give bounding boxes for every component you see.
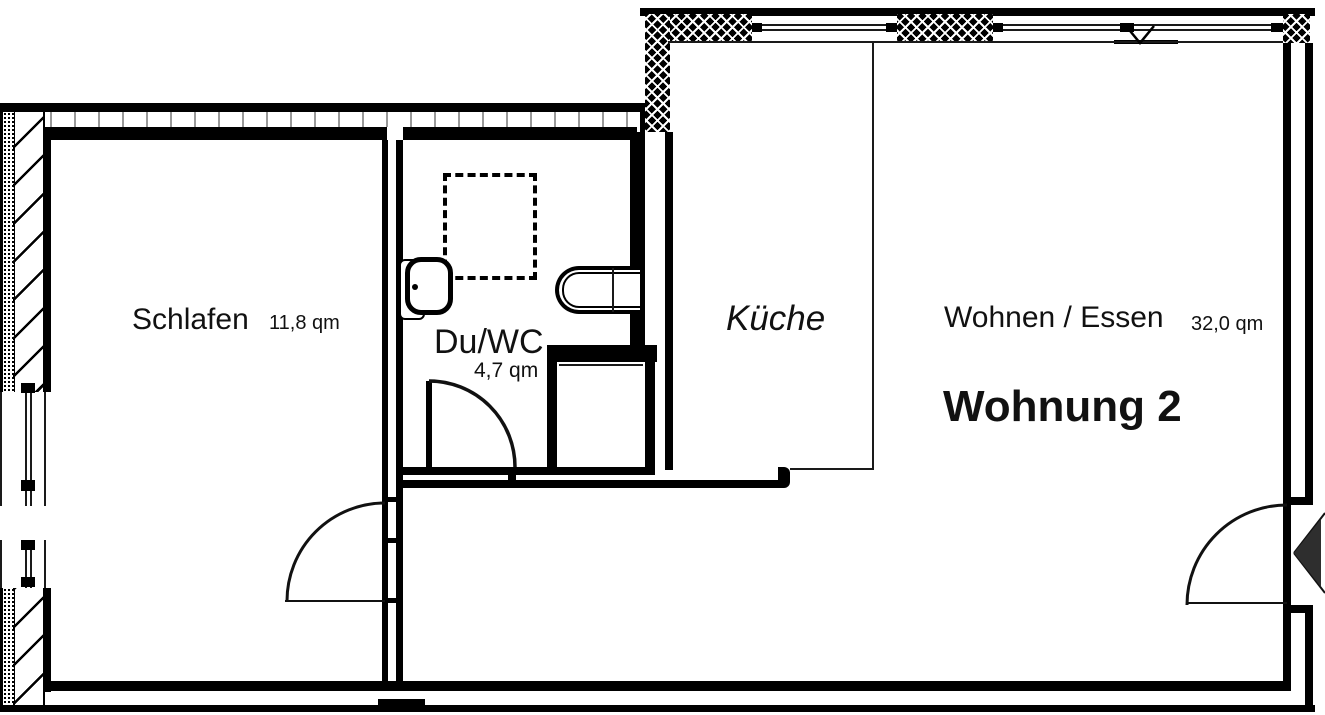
window-top-mullion-5	[1271, 23, 1283, 32]
wall-right-outer-lower	[1305, 613, 1313, 712]
window-top-2-glass1	[993, 24, 1283, 26]
wall-duwc-south-top-face	[398, 467, 655, 475]
duwc-door-leaf	[426, 381, 432, 467]
wall-right-inner-lower	[1283, 613, 1291, 681]
window-left-mullion-1	[21, 383, 35, 393]
wall-bottom-pier	[378, 699, 425, 712]
floor-plan: Schlafen 11,8 qm Du/WC 4,7 qm Küche Wohn…	[0, 0, 1325, 715]
room-label-wohnen: Wohnen / Essen	[944, 303, 1164, 333]
wall-partition-joint-1	[382, 497, 403, 502]
window-top-mullion-2	[886, 23, 897, 32]
window-left-mullion-3	[21, 540, 35, 550]
bathtub-inner	[562, 272, 640, 308]
wall-hall-north-face	[398, 480, 782, 488]
wall-insulation-block-vertical	[645, 14, 670, 132]
wall-top-duwc	[403, 127, 637, 140]
window-top-mullion-4	[1120, 23, 1134, 32]
entry-door-arc	[1187, 505, 1287, 605]
bathtub-divider	[612, 268, 614, 312]
wall-left-hatch-bottom	[13, 588, 45, 710]
window-left-upper-inner	[44, 392, 46, 506]
entry-door-frame-bottom	[1283, 605, 1313, 613]
room-label-schlafen: Schlafen	[132, 305, 249, 335]
window-left-mullion-4	[21, 577, 35, 587]
window-left-mullion-2	[21, 480, 35, 491]
unit-title: Wohnung 2	[943, 385, 1182, 429]
wall-left-inner-bottom	[43, 588, 51, 692]
window-left-lower-inner	[44, 540, 46, 588]
wall-top-brick-ticks	[50, 112, 640, 127]
wall-partition-joint-2	[382, 538, 403, 543]
window-left-lower-outer	[0, 540, 2, 588]
wall-kueche-west	[665, 132, 673, 470]
wall-left-inner-top	[43, 127, 51, 392]
window-top-1-glass1	[752, 24, 897, 26]
window-left-upper-outer	[0, 392, 2, 506]
wall-right-outer-upper	[1305, 43, 1313, 497]
schlafen-door-arc	[287, 503, 385, 601]
duwc-door-arc	[429, 381, 515, 467]
window-top-mullion-1	[752, 23, 762, 32]
window-top-2-glass2	[993, 29, 1283, 31]
window-top-1-glass2	[752, 29, 897, 31]
room-area-schlafen: 11,8 qm	[269, 313, 340, 333]
wall-insulation-block-2	[897, 14, 993, 43]
window-top-mullion-3	[993, 23, 1003, 32]
room-label-duwc: Du/WC	[434, 325, 544, 359]
entry-door-frame-top	[1283, 497, 1313, 505]
shower-dashed-outline	[443, 173, 537, 280]
wall-bottom-inner	[45, 681, 1291, 691]
wall-top-inner-face-right	[668, 41, 1283, 43]
wall-top-outer-left	[0, 103, 648, 112]
wall-left-hatch-top	[13, 108, 45, 392]
kueche-boundary-horizontal	[790, 468, 872, 470]
room-label-kueche: Küche	[726, 301, 825, 336]
entry-arrow-line-top	[1294, 513, 1325, 553]
wall-insulation-block-corner	[1283, 14, 1310, 43]
entry-arrow-icon	[1294, 519, 1321, 587]
shaft-top-bar	[547, 345, 657, 362]
toilet-flush-dot	[412, 284, 418, 290]
wall-top-schlafen	[43, 127, 387, 140]
wall-bottom-outer	[0, 705, 1315, 712]
wall-hall-north-endcap	[778, 467, 790, 488]
room-area-duwc: 4,7 qm	[474, 360, 538, 381]
wall-right-inner-upper	[1283, 43, 1291, 497]
wall-partition-joint-3	[382, 598, 403, 603]
shaft-wall-left	[547, 362, 557, 470]
shaft-wall-right	[645, 362, 655, 467]
wall-duwc-east	[630, 132, 645, 362]
room-area-wohnen: 32,0 qm	[1191, 314, 1263, 334]
kueche-boundary-vertical	[872, 43, 874, 470]
entry-arrow-line-bottom	[1294, 553, 1325, 593]
wall-duwc-south-jog	[508, 467, 516, 484]
shaft-inner-line	[559, 364, 643, 366]
entry-door-leaf-closed	[1283, 505, 1291, 605]
